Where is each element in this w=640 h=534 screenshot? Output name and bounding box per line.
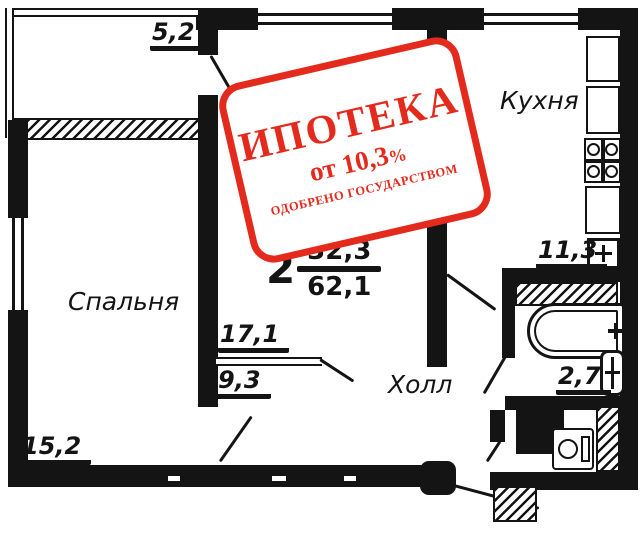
- stamp-rate-prefix: от: [306, 152, 338, 187]
- toilet-tank: [581, 436, 590, 462]
- living-area-label: 17,1: [218, 320, 289, 353]
- living-window: [258, 8, 392, 30]
- wc-door-swing: [486, 441, 502, 463]
- wall-joint-mark: [168, 476, 180, 481]
- bottom-wall: [8, 465, 422, 487]
- balcony-area-label: 5,2: [150, 18, 205, 51]
- stove-cell: [603, 161, 622, 184]
- kitchen-window: [484, 8, 578, 30]
- mortgage-stamp: ИПОТЕКА от 10,3% ОДОБРЕНО ГОСУДАРСТВОМ: [214, 33, 495, 268]
- balcony-glazing-top: [6, 8, 198, 17]
- kitchen-counter: [585, 186, 621, 234]
- bathroom-top-wall: [505, 268, 638, 282]
- bedroom-label: Спальня: [68, 287, 179, 316]
- burner-icon: [605, 165, 618, 178]
- bedroom-living-wall: [198, 95, 218, 407]
- vent-shaft-bottom: [493, 486, 537, 522]
- bathroom-area-label: 2,7: [556, 362, 611, 395]
- bathtub-inner: [534, 310, 618, 352]
- burner-icon: [587, 143, 600, 156]
- faucet-icon: [614, 323, 618, 339]
- kitchen-cabinet: [586, 36, 620, 82]
- balcony-facade-wall: [14, 118, 204, 140]
- total-area: 62,1: [307, 274, 371, 300]
- kitchen-cabinet: [586, 86, 620, 134]
- washbasin-cross: [611, 357, 614, 389]
- living-door-swing: [319, 358, 354, 382]
- toilet: [552, 428, 594, 470]
- kitchen-area-label: 11,3: [536, 236, 607, 269]
- stamp-rate-percent: %: [386, 144, 408, 168]
- bedroom-area-label: 15,2: [20, 432, 91, 465]
- kitchen-label: Кухня: [500, 86, 579, 115]
- toilet-bowl: [558, 439, 578, 459]
- stove-cell: [603, 138, 622, 161]
- living-hall-partition: [216, 357, 322, 366]
- stove-cell: [584, 161, 603, 184]
- burner-icon: [587, 165, 600, 178]
- wall-joint-mark: [344, 476, 356, 481]
- bathroom-left-wall: [502, 268, 515, 358]
- bathroom-door-swing: [483, 355, 508, 395]
- stove-cell: [584, 138, 603, 161]
- wc-left-wall: [490, 410, 505, 442]
- hall-area-label: 9,3: [216, 366, 271, 399]
- right-wall: [620, 8, 638, 490]
- bedroom-window: [8, 218, 28, 310]
- bedroom-door-swing: [219, 416, 253, 463]
- floor-plan: 5,2 Спальня 15,2 Гостиная 17,1 Кухня 11,…: [0, 0, 640, 534]
- wall-joint-mark: [272, 476, 286, 481]
- kitchen-door-swing: [446, 273, 496, 311]
- vent-shaft-right: [596, 406, 620, 472]
- balcony-glazing-left: [5, 8, 14, 138]
- stove: [584, 138, 621, 183]
- burner-icon: [605, 143, 618, 156]
- entrance-door-post: [420, 461, 456, 495]
- hall-label: Холл: [388, 370, 452, 399]
- left-wall-upper: [8, 120, 28, 218]
